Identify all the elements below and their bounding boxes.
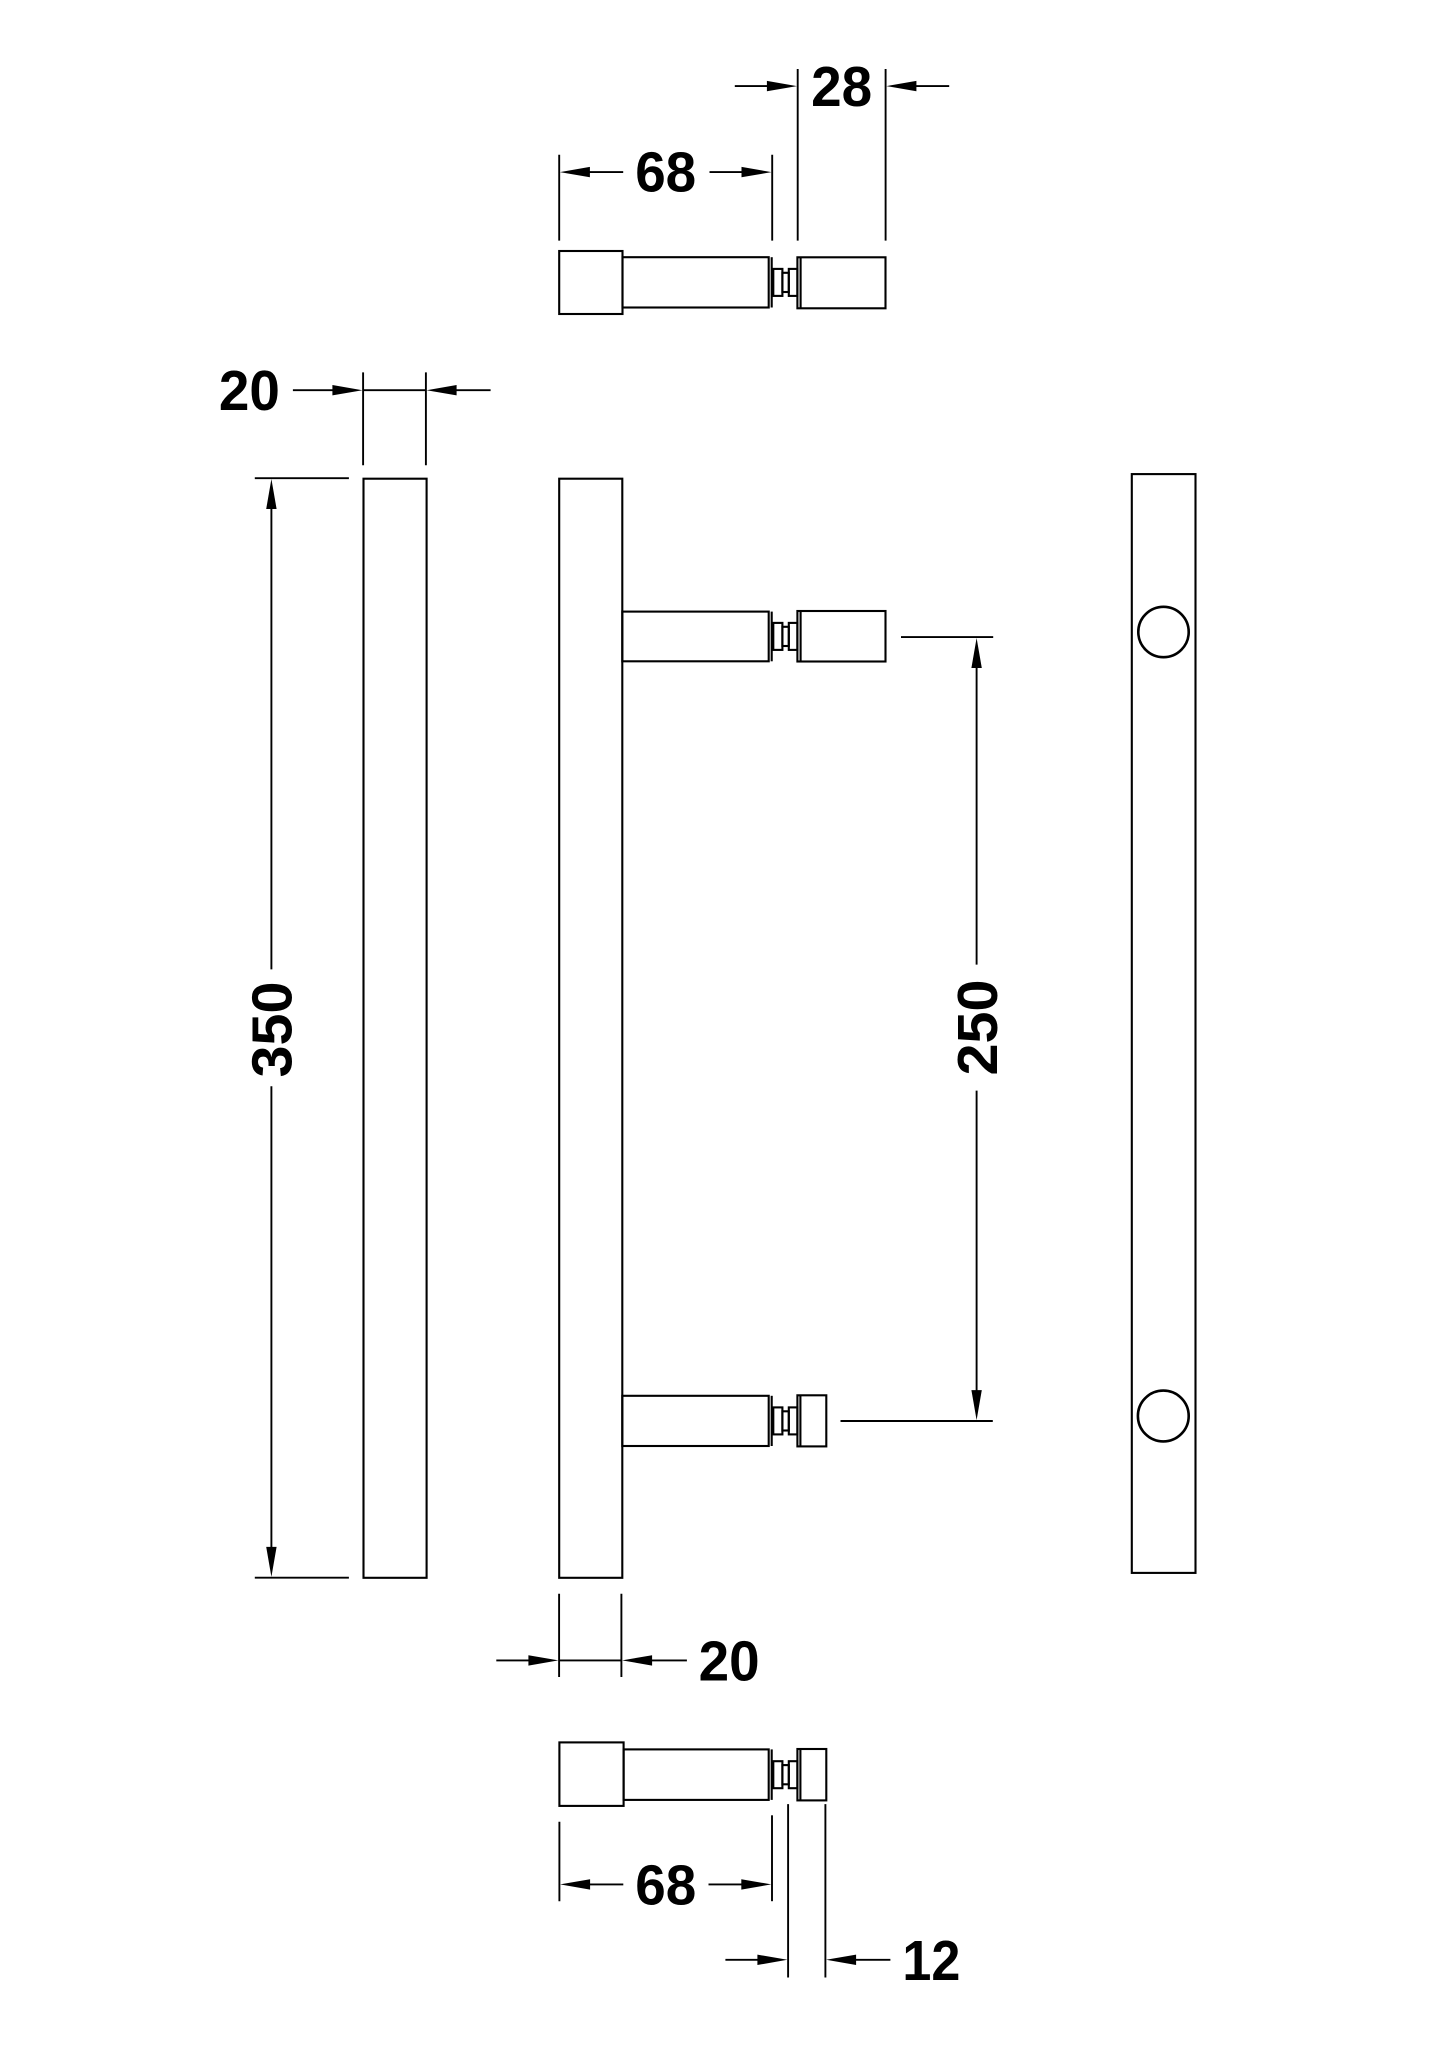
- svg-text:12: 12: [902, 1929, 960, 1993]
- svg-text:20: 20: [219, 359, 280, 423]
- svg-text:250: 250: [946, 980, 1010, 1076]
- svg-text:20: 20: [699, 1630, 760, 1694]
- svg-text:28: 28: [811, 55, 872, 119]
- svg-text:350: 350: [241, 982, 305, 1078]
- svg-text:68: 68: [635, 141, 696, 205]
- svg-text:68: 68: [635, 1854, 696, 1918]
